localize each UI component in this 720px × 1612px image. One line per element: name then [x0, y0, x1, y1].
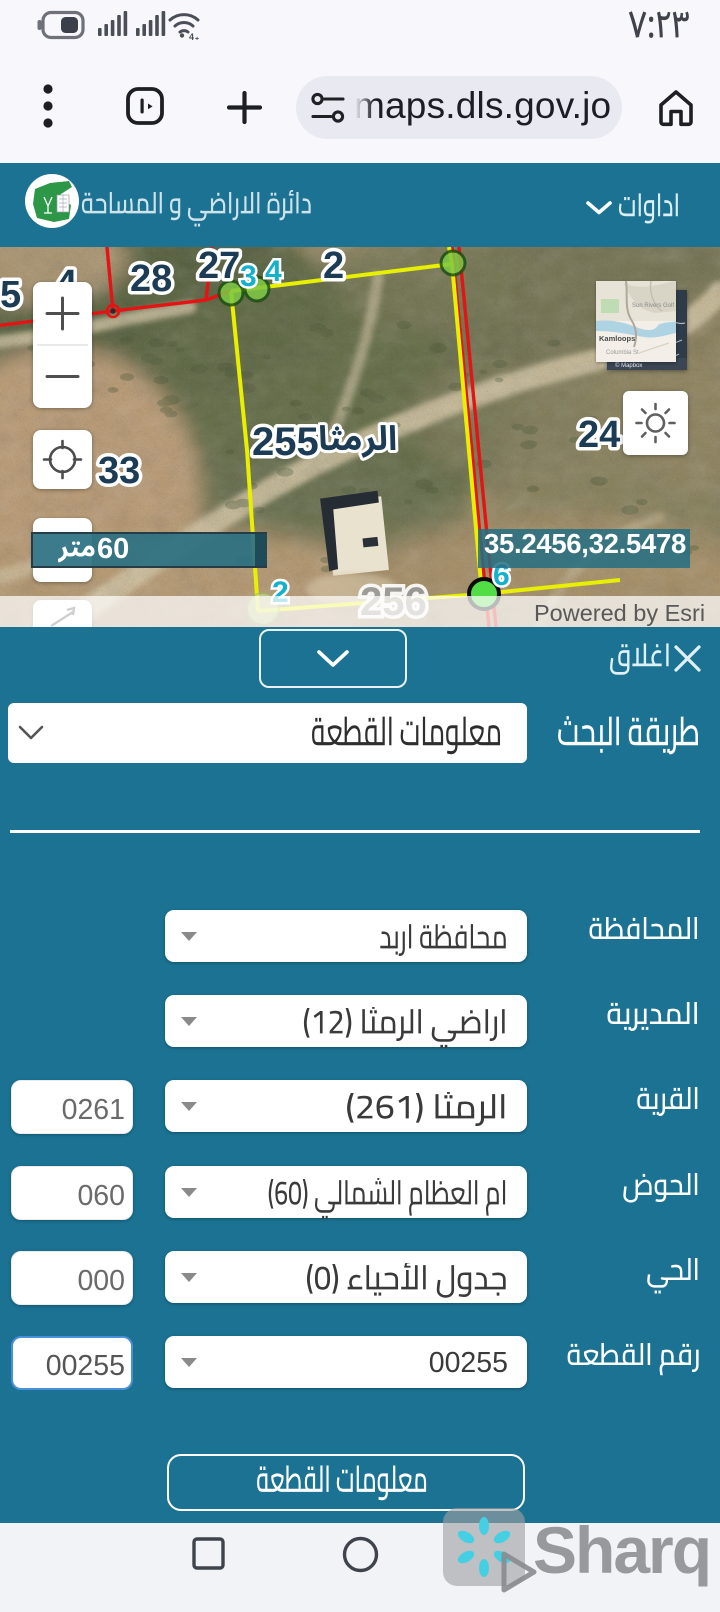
svg-text:Columbia St: Columbia St — [606, 350, 639, 356]
svg-text:4: 4 — [189, 32, 194, 40]
svg-text:33: 33 — [98, 450, 140, 492]
svg-text:Sun Rivers Golf: Sun Rivers Golf — [632, 303, 674, 309]
svg-text:28: 28 — [130, 258, 172, 300]
svg-text:4: 4 — [265, 255, 282, 288]
svg-text:+: + — [195, 36, 199, 40]
svg-text:Kamloops: Kamloops — [599, 334, 635, 343]
svg-text:2: 2 — [323, 247, 344, 287]
svg-text:3: 3 — [240, 260, 257, 293]
svg-text:255: 255 — [252, 420, 319, 464]
svg-text:5: 5 — [0, 274, 21, 316]
svg-text:© Mapbox: © Mapbox — [615, 362, 642, 369]
svg-text:27: 27 — [198, 247, 240, 287]
svg-text:24: 24 — [578, 414, 620, 456]
